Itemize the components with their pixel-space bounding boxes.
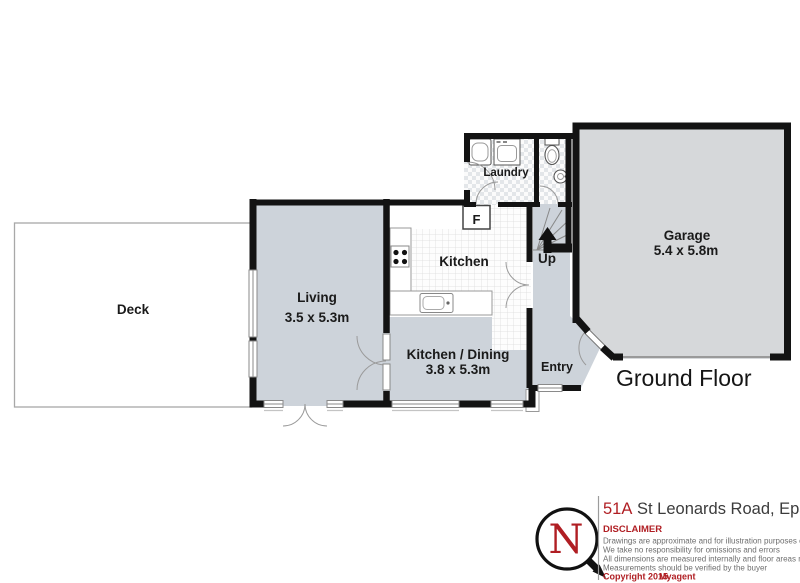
laundry-label: Laundry <box>483 167 529 179</box>
north-letter: N <box>549 517 584 563</box>
agency-name: Myagent <box>659 572 696 582</box>
kitchen-dining-dims: 3.8 x 5.3m <box>426 362 491 377</box>
fridge-label: F <box>473 212 481 227</box>
sink-icon <box>420 294 453 313</box>
living-dims: 3.5 x 5.3m <box>285 310 350 325</box>
address-number: 51A <box>603 500 632 518</box>
floorplan-page: Deck Living 3.5 x 5.3m Kitchen Kitchen /… <box>0 0 800 583</box>
stove-icon <box>391 246 409 267</box>
disclaimer-title: DISCLAIMER <box>603 524 662 535</box>
basin-icon <box>554 170 567 183</box>
french-door-leaf-bottom <box>383 364 390 390</box>
kitchen-bench-top <box>411 205 463 229</box>
toilet-icon <box>545 138 559 165</box>
disclaimer-line-1: Drawings are approximate and for illustr… <box>603 537 800 546</box>
deck-label: Deck <box>117 302 150 317</box>
stairs-up-label: Up <box>538 251 556 266</box>
disclaimer-line-2: We take no responsibility for omissions … <box>603 546 780 555</box>
disclaimer-line-3: All dimensions are measured internally a… <box>603 555 800 564</box>
address-street: St Leonards Road, Epsom <box>637 500 800 518</box>
floorplan-canvas: Deck Living 3.5 x 5.3m Kitchen Kitchen /… <box>0 0 800 583</box>
living-label: Living <box>297 290 337 305</box>
kitchen-dining-label: Kitchen / Dining <box>407 347 510 362</box>
kitchen-label: Kitchen <box>439 254 489 269</box>
entry-label: Entry <box>541 360 573 374</box>
floor-title: Ground Floor <box>616 365 752 391</box>
laundry-tub-icon <box>469 139 491 165</box>
french-door-leaf-top <box>383 334 390 360</box>
garage-dims: 5.4 x 5.8m <box>654 243 719 258</box>
garage-label: Garage <box>664 228 711 243</box>
washing-machine-icon <box>494 139 520 165</box>
